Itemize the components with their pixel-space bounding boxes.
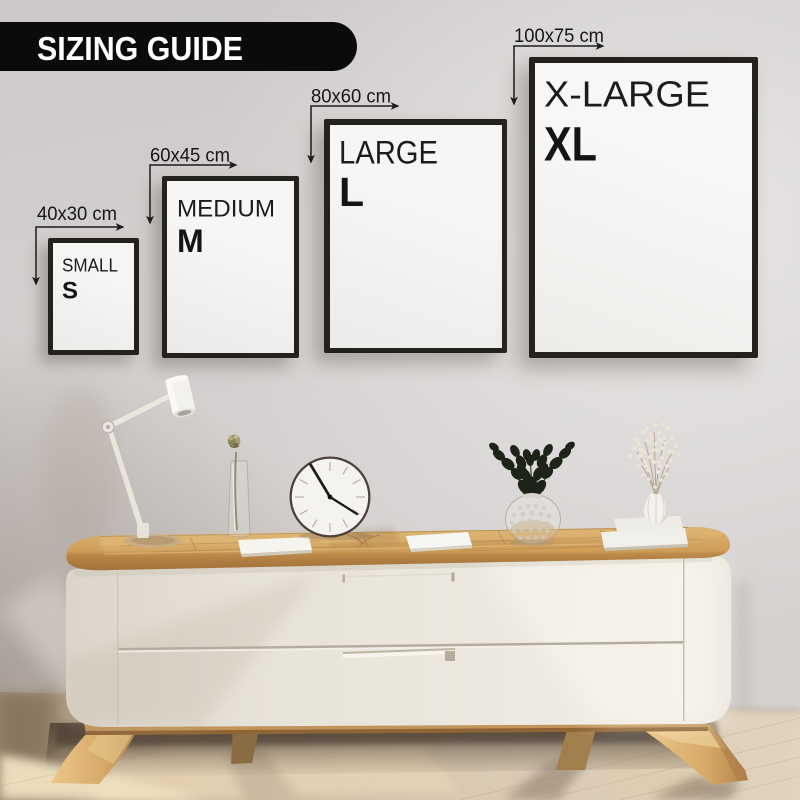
svg-text:X-LARGE: X-LARGE [544, 74, 710, 115]
svg-text:S: S [62, 278, 78, 305]
svg-text:MEDIUM: MEDIUM [177, 196, 275, 223]
svg-text:40x30 cm: 40x30 cm [37, 204, 117, 225]
svg-text:SMALL: SMALL [62, 256, 118, 276]
svg-text:M: M [177, 223, 204, 259]
svg-text:LARGE: LARGE [339, 135, 438, 171]
svg-text:L: L [339, 169, 364, 215]
svg-text:100x75 cm: 100x75 cm [514, 26, 604, 47]
svg-text:XL: XL [544, 119, 597, 172]
svg-text:60x45 cm: 60x45 cm [150, 146, 230, 167]
svg-text:SIZING GUIDE: SIZING GUIDE [37, 30, 243, 67]
svg-text:80x60 cm: 80x60 cm [311, 87, 391, 108]
